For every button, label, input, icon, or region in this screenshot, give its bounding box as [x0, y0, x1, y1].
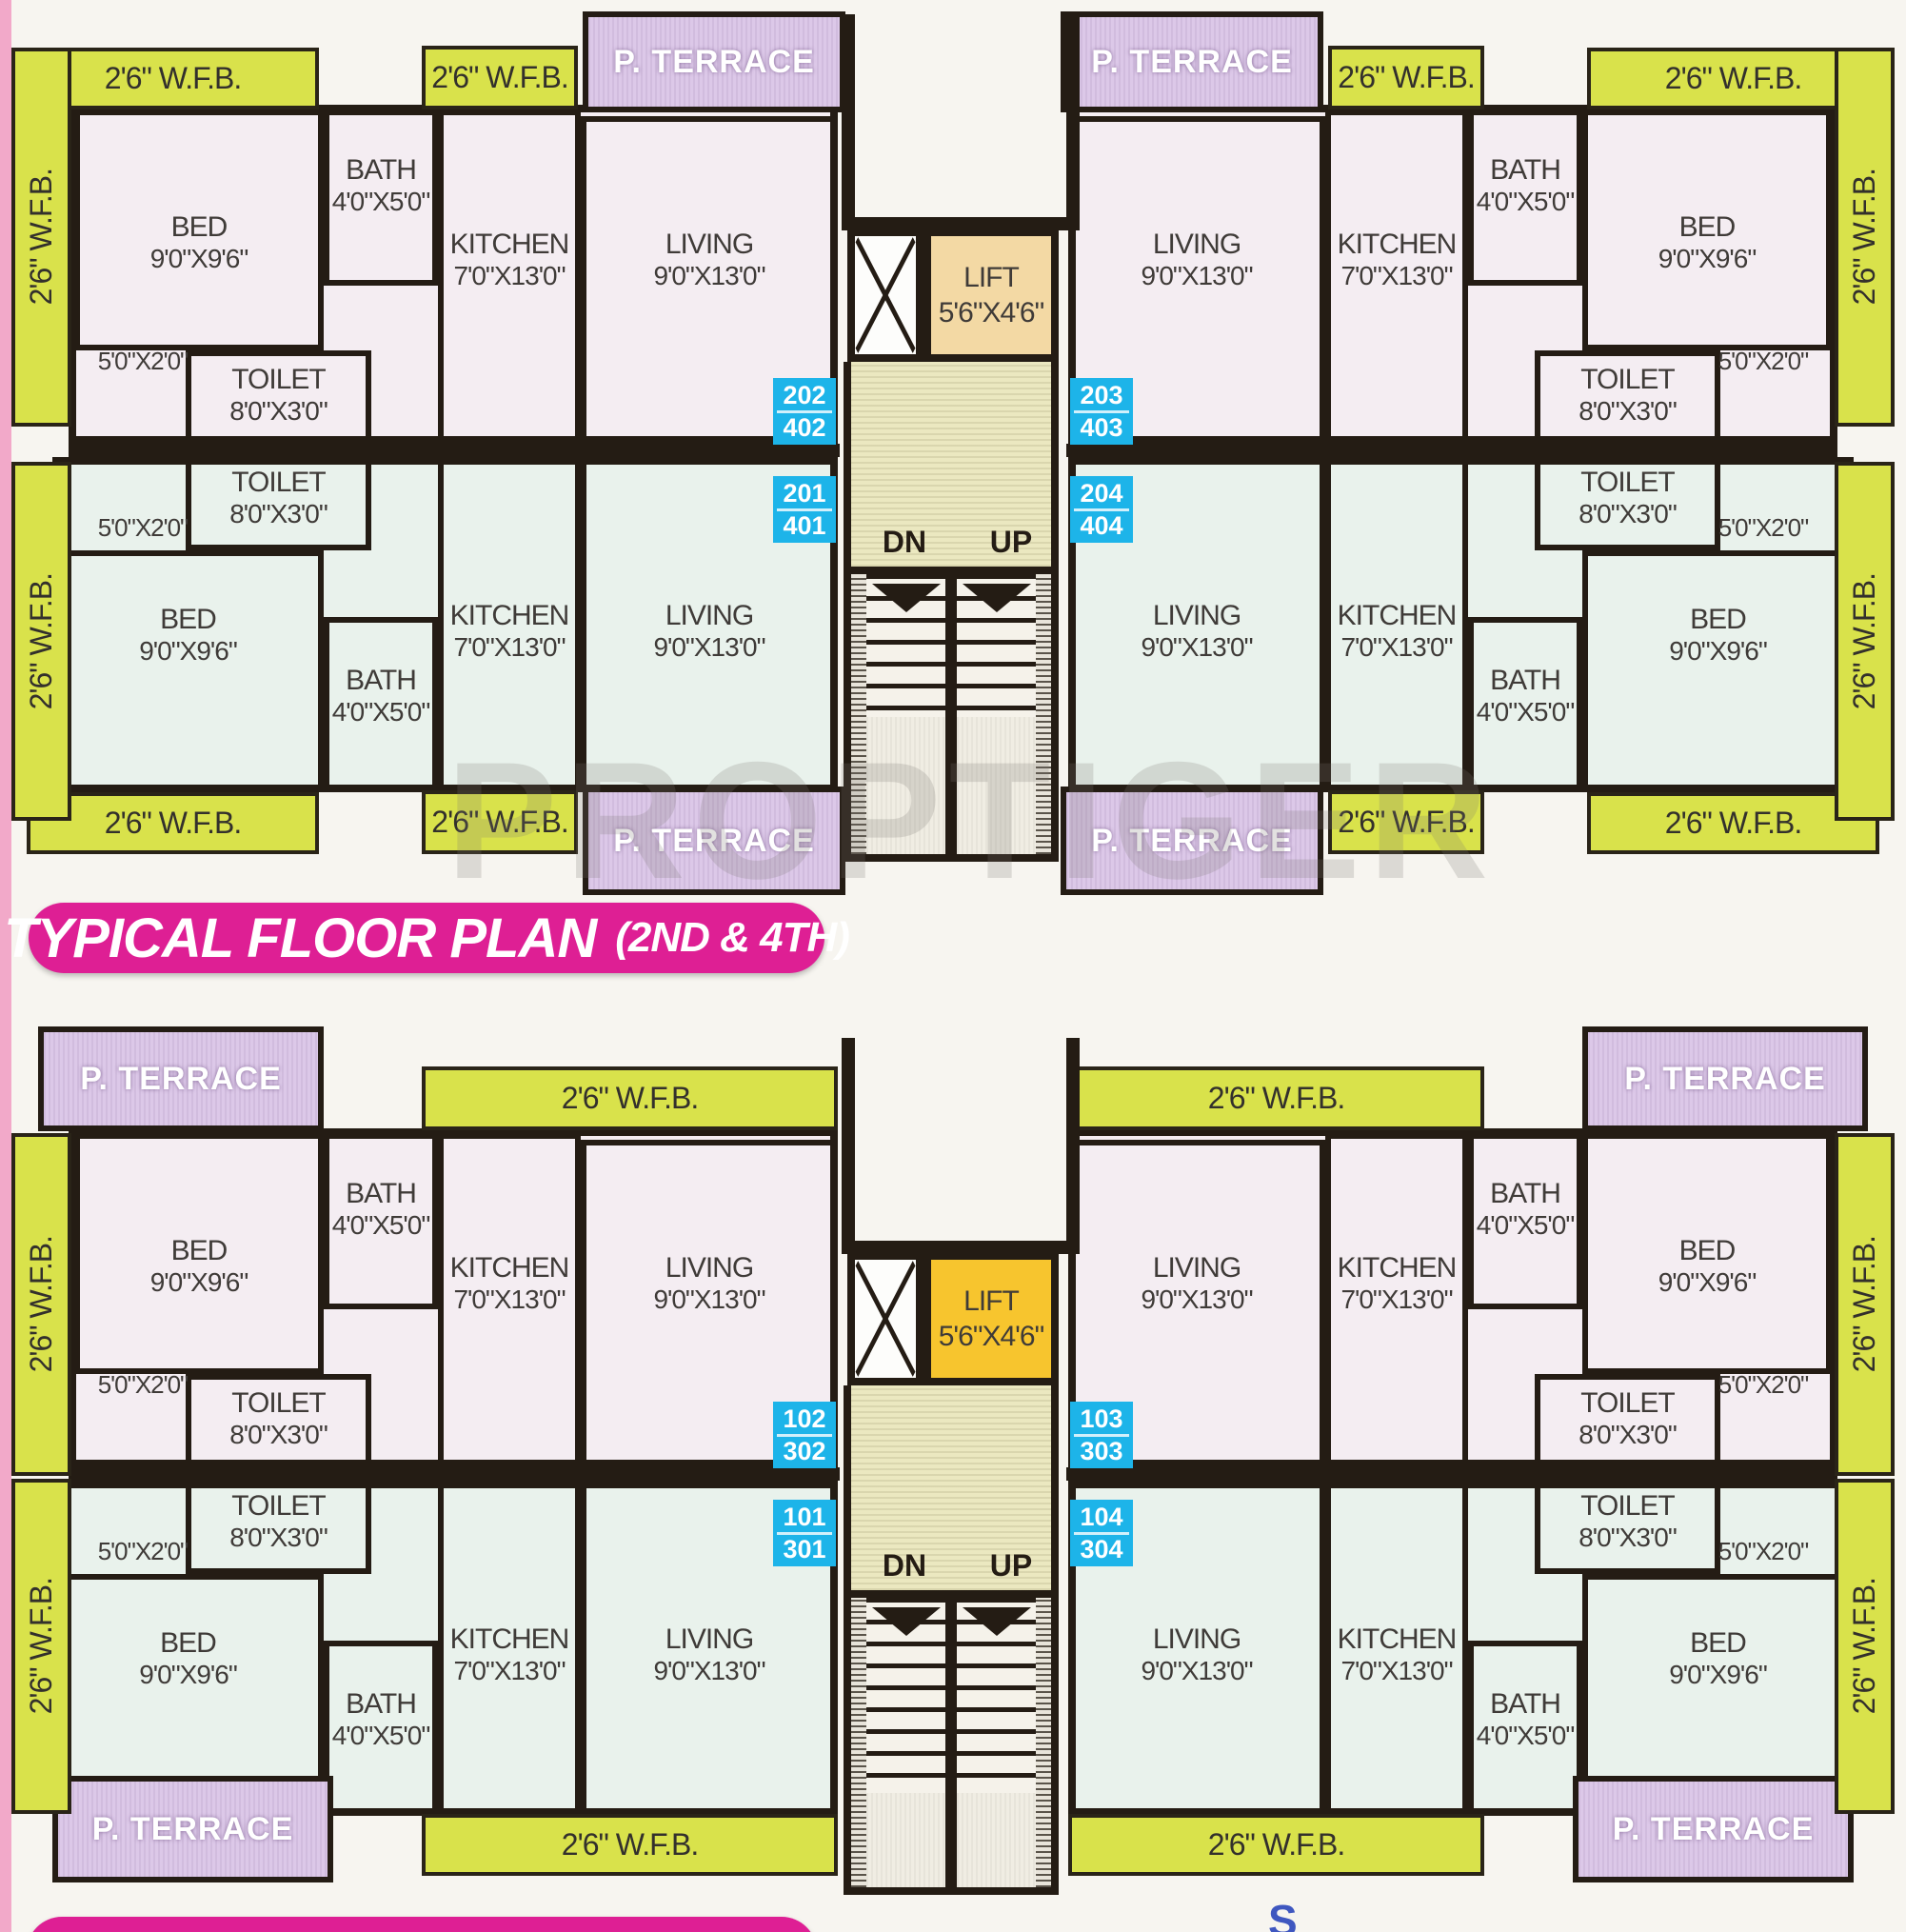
lift: LIFT5'6"X4'6" [923, 229, 1059, 362]
bed-notch-dim: 5'0"X2'0" [1668, 1371, 1858, 1399]
stair-flight-up [957, 574, 1036, 854]
wfb-strip-label: 2'6" W.F.B. [24, 169, 59, 305]
room-toilet-dim: 8'0"X3'0" [1504, 397, 1752, 427]
wfb-strip-label: 2'6" W.F.B. [431, 60, 567, 95]
room-living-label: LIVING [1073, 600, 1320, 631]
wfb-strip-label: 2'6" W.F.B. [1847, 1236, 1882, 1372]
plan-title-main: TYPICAL FLOOR PLAN [4, 906, 596, 970]
unit-number: 202 [777, 381, 832, 410]
wfb-strip-label: 2'6" W.F.B. [1338, 60, 1474, 95]
unit-number: 302 [777, 1434, 832, 1466]
room-living-dim: 9'0"X13'0" [1073, 1657, 1320, 1686]
private-terrace: P. TERRACE [38, 1026, 324, 1131]
unit-number: 102 [777, 1404, 832, 1434]
room-bed-label: BED [65, 1627, 312, 1659]
shaft-wall [842, 1038, 855, 1252]
unit-number: 204 [1074, 479, 1129, 508]
wfb-strip-vertical: 2'6" W.F.B. [1835, 1479, 1895, 1814]
room-living-dim: 9'0"X13'0" [1073, 1285, 1320, 1315]
stair-divider [945, 1598, 957, 1887]
unit-badge: 104304 [1070, 1500, 1133, 1566]
room-toilet-dim: 8'0"X3'0" [1504, 1421, 1752, 1450]
stair-direction-arrow [872, 584, 941, 612]
lift-shaft-duct [847, 1252, 923, 1385]
unit-number: 203 [1074, 381, 1129, 410]
lift: LIFT5'6"X4'6" [923, 1252, 1059, 1385]
plan-title-sub: (2ND & 4TH) [615, 914, 849, 962]
shaft-wall [842, 14, 855, 229]
room-bed-dim: 9'0"X9'6" [1583, 245, 1831, 274]
shaft-wall [1066, 1038, 1080, 1252]
private-terrace-label: P. TERRACE [613, 823, 815, 860]
room-toilet-label: TOILET [1504, 1490, 1752, 1522]
private-terrace: P. TERRACE [583, 787, 845, 895]
wfb-strip-label: 2'6" W.F.B. [105, 806, 241, 841]
unit-badge: 101301 [773, 1500, 836, 1566]
bed-notch-dim: 5'0"X2'0" [48, 1538, 238, 1565]
stair-flight-down [866, 574, 945, 854]
unit-divider-wall [1066, 444, 1837, 457]
wfb-strip-label: 2'6" W.F.B. [1665, 806, 1801, 841]
wfb-strip-vertical: 2'6" W.F.B. [11, 1479, 71, 1814]
room-toilet-label: TOILET [155, 1490, 403, 1522]
unit-number: 104 [1074, 1503, 1129, 1532]
unit-number: 304 [1074, 1532, 1129, 1564]
unit-badge: 204404 [1070, 476, 1133, 543]
wfb-strip-label: 2'6" W.F.B. [562, 1081, 698, 1116]
room-bed-label: BED [1595, 604, 1842, 635]
unit-badge: 201401 [773, 476, 836, 543]
wfb-strip-horizontal: 2'6" W.F.B. [422, 1066, 838, 1130]
private-terrace: P. TERRACE [1061, 787, 1323, 895]
unit-number: 103 [1074, 1404, 1129, 1434]
shaft-wall [1066, 14, 1080, 229]
wfb-strip-label: 2'6" W.F.B. [1338, 805, 1474, 840]
wfb-strip-label: 2'6" W.F.B. [105, 61, 241, 96]
unit-number: 401 [777, 508, 832, 541]
stair-rail [1036, 574, 1051, 854]
wfb-strip-horizontal: 2'6" W.F.B. [1328, 790, 1484, 854]
room-toilet-dim: 8'0"X3'0" [155, 1421, 403, 1450]
unit-number: 404 [1074, 508, 1129, 541]
unit-number: 201 [777, 479, 832, 508]
wfb-strip-horizontal: 2'6" W.F.B. [1068, 1814, 1484, 1876]
staircase [844, 567, 1059, 862]
wfb-strip-vertical: 2'6" W.F.B. [1835, 462, 1895, 821]
plan-title-pill-partial [27, 1917, 817, 1932]
stair-divider [945, 574, 957, 854]
stair-rail [851, 574, 866, 854]
bed-notch-dim: 5'0"X2'0" [48, 514, 238, 542]
bed-notch-dim: 5'0"X2'0" [1668, 1538, 1858, 1565]
wfb-strip-label: 2'6" W.F.B. [1208, 1827, 1344, 1862]
unit-number: 402 [777, 410, 832, 443]
bed-notch-dim: 5'0"X2'0" [1668, 514, 1858, 542]
room-living-dim: 9'0"X13'0" [586, 633, 833, 663]
wfb-strip-label: 2'6" W.F.B. [24, 1578, 59, 1714]
stairs-up-label: UP [968, 1549, 1054, 1583]
room-living-dim: 9'0"X13'0" [586, 262, 833, 291]
unit-number: 301 [777, 1532, 832, 1564]
stairs-down-label: DN [862, 526, 947, 559]
room-toilet-label: TOILET [155, 467, 403, 498]
private-terrace: P. TERRACE [583, 11, 845, 112]
stair-rail [1036, 1598, 1051, 1887]
lift-label: LIFT [963, 260, 1019, 296]
room-living-label: LIVING [586, 600, 833, 631]
wfb-strip-horizontal: 2'6" W.F.B. [422, 1814, 838, 1876]
bed-notch-dim: 5'0"X2'0" [48, 1371, 238, 1399]
bed-notch-dim: 5'0"X2'0" [48, 348, 238, 375]
room-living-label: LIVING [1073, 1623, 1320, 1655]
wfb-strip-label: 2'6" W.F.B. [1208, 1081, 1344, 1116]
private-terrace-label: P. TERRACE [1613, 1811, 1815, 1848]
room-bed-dim: 9'0"X9'6" [1595, 1661, 1842, 1690]
stairs-down-label: DN [862, 1549, 947, 1583]
unit-badge: 102302 [773, 1402, 836, 1468]
private-terrace: P. TERRACE [1061, 11, 1323, 112]
stair-direction-arrow [963, 1607, 1031, 1636]
wfb-strip-vertical: 2'6" W.F.B. [1835, 48, 1895, 427]
stair-direction-arrow [872, 1607, 941, 1636]
room-living-label: LIVING [586, 229, 833, 260]
floor-plan-brochure-page: BED9'0"X9'6"BATH4'0"X5'0"KITCHEN7'0"X13'… [0, 0, 1906, 1932]
private-terrace-label: P. TERRACE [1624, 1061, 1826, 1098]
compass-south-label: S [1268, 1895, 1298, 1932]
room-living-dim: 9'0"X13'0" [586, 1657, 833, 1686]
room-toilet-label: TOILET [1504, 467, 1752, 498]
bed-notch-dim: 5'0"X2'0" [1668, 348, 1858, 375]
wfb-strip-vertical: 2'6" W.F.B. [11, 48, 71, 427]
private-terrace-label: P. TERRACE [1091, 823, 1293, 860]
private-terrace: P. TERRACE [1582, 1026, 1868, 1131]
unit-badge: 103303 [1070, 1402, 1133, 1468]
lift-dim: 5'6"X4'6" [939, 295, 1044, 331]
staircase [844, 1590, 1059, 1895]
wfb-strip-label: 2'6" W.F.B. [562, 1827, 698, 1862]
private-terrace-label: P. TERRACE [613, 44, 815, 81]
room-toilet-dim: 8'0"X3'0" [155, 397, 403, 427]
wfb-strip-vertical: 2'6" W.F.B. [11, 462, 71, 821]
room-bed-label: BED [65, 604, 312, 635]
wfb-strip-horizontal: 2'6" W.F.B. [1328, 46, 1484, 110]
wfb-strip-horizontal: 2'6" W.F.B. [422, 790, 578, 854]
private-terrace-label: P. TERRACE [80, 1061, 282, 1098]
stair-direction-arrow [963, 584, 1031, 612]
private-terrace-label: P. TERRACE [1091, 44, 1293, 81]
unit-divider-wall [1066, 1467, 1837, 1481]
room-living-label: LIVING [586, 1252, 833, 1284]
private-terrace: P. TERRACE [1573, 1776, 1854, 1882]
wfb-strip-horizontal: 2'6" W.F.B. [422, 46, 578, 110]
lift-shaft-duct [847, 229, 923, 362]
room-bed-dim: 9'0"X9'6" [75, 245, 323, 274]
stair-flight-up [957, 1598, 1036, 1887]
room-living-label: LIVING [1073, 1252, 1320, 1284]
unit-divider-wall [69, 444, 840, 457]
wfb-strip-label: 2'6" W.F.B. [24, 573, 59, 709]
unit-number: 101 [777, 1503, 832, 1532]
wfb-strip-label: 2'6" W.F.B. [1847, 573, 1882, 709]
room-bed-dim: 9'0"X9'6" [65, 1661, 312, 1690]
wfb-strip-label: 2'6" W.F.B. [24, 1236, 59, 1372]
wfb-strip-label: 2'6" W.F.B. [431, 805, 567, 840]
lift-dim: 5'6"X4'6" [939, 1319, 1044, 1355]
wfb-strip-horizontal: 2'6" W.F.B. [1068, 1066, 1484, 1130]
lift-label: LIFT [963, 1284, 1019, 1320]
unit-number: 403 [1074, 410, 1129, 443]
room-living-label: LIVING [586, 1623, 833, 1655]
room-bed-dim: 9'0"X9'6" [65, 637, 312, 667]
unit-number: 303 [1074, 1434, 1129, 1466]
stair-flight-down [866, 1598, 945, 1887]
wfb-strip-label: 2'6" W.F.B. [1665, 61, 1801, 96]
stair-rail [851, 1598, 866, 1887]
wfb-strip-label: 2'6" W.F.B. [1847, 1578, 1882, 1714]
room-bed-label: BED [1595, 1627, 1842, 1659]
room-living-label: LIVING [1073, 229, 1320, 260]
room-living-dim: 9'0"X13'0" [1073, 262, 1320, 291]
unit-divider-wall [69, 1467, 840, 1481]
unit-badge: 203403 [1070, 378, 1133, 445]
plan-title-pill: TYPICAL FLOOR PLAN (2ND & 4TH) [29, 903, 824, 973]
room-living-dim: 9'0"X13'0" [1073, 633, 1320, 663]
room-bed-dim: 9'0"X9'6" [1583, 1268, 1831, 1298]
wfb-strip-vertical: 2'6" W.F.B. [11, 1133, 71, 1476]
wfb-strip-vertical: 2'6" W.F.B. [1835, 1133, 1895, 1476]
unit-badge: 202402 [773, 378, 836, 445]
room-bed-dim: 9'0"X9'6" [1595, 637, 1842, 667]
private-terrace-label: P. TERRACE [92, 1811, 294, 1848]
room-living-dim: 9'0"X13'0" [586, 1285, 833, 1315]
wfb-strip-label: 2'6" W.F.B. [1847, 169, 1882, 305]
stairs-up-label: UP [968, 526, 1054, 559]
room-bed-dim: 9'0"X9'6" [75, 1268, 323, 1298]
private-terrace: P. TERRACE [52, 1776, 333, 1882]
